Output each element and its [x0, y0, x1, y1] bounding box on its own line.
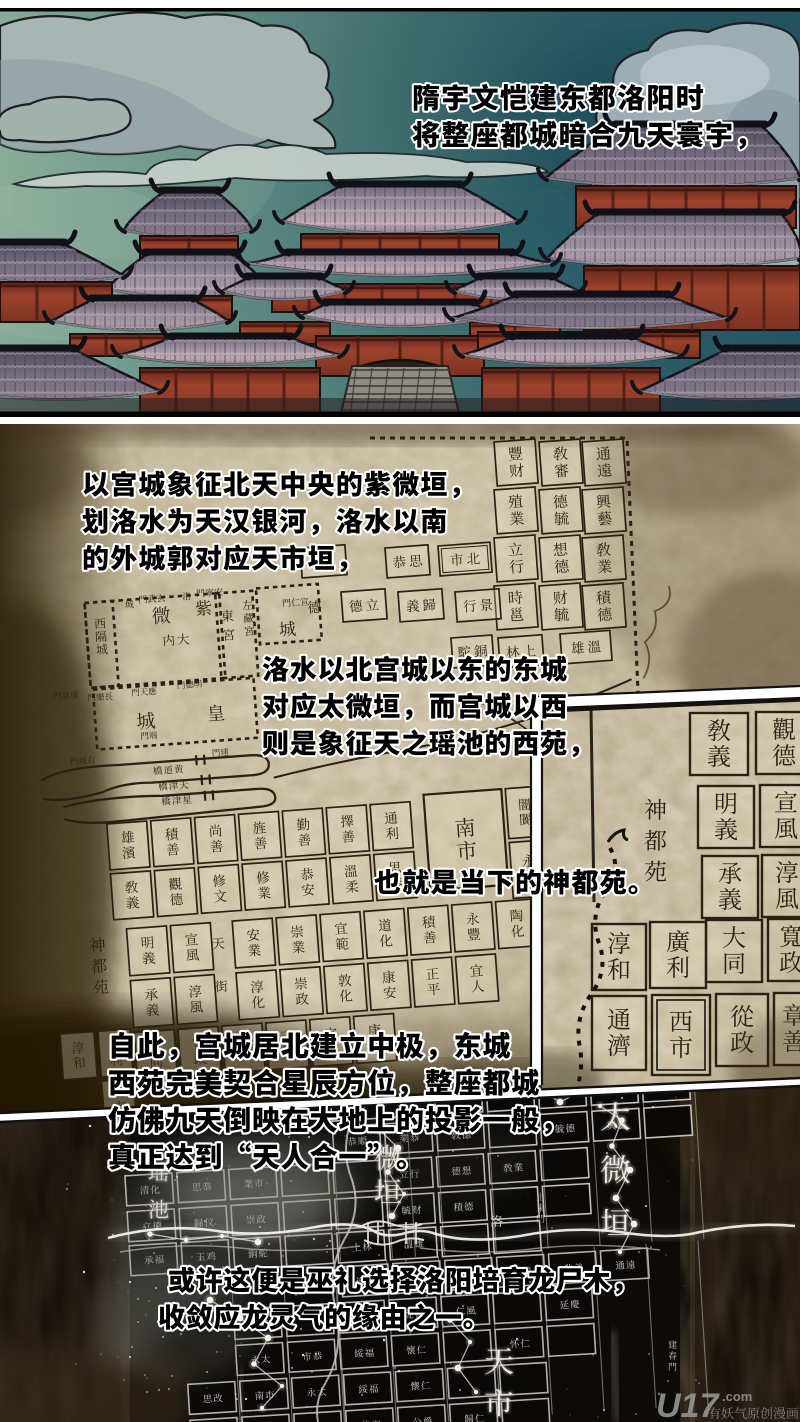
- svg-text:.com: .com: [722, 1389, 752, 1404]
- svg-text:U17: U17: [656, 1387, 720, 1422]
